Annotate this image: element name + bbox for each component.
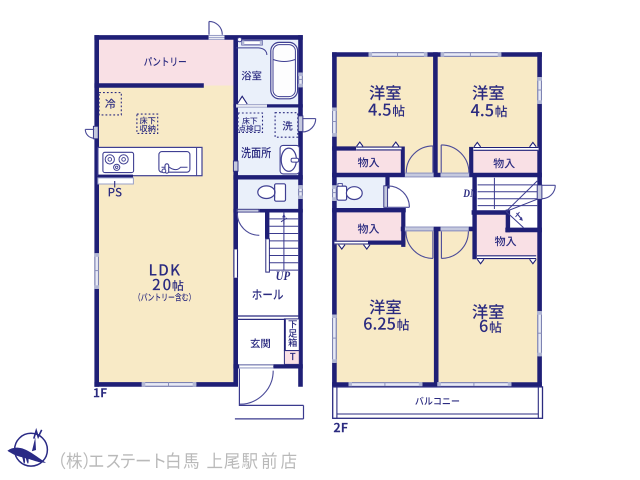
svg-text:UP: UP <box>276 269 291 283</box>
svg-text:DN: DN <box>463 186 478 200</box>
